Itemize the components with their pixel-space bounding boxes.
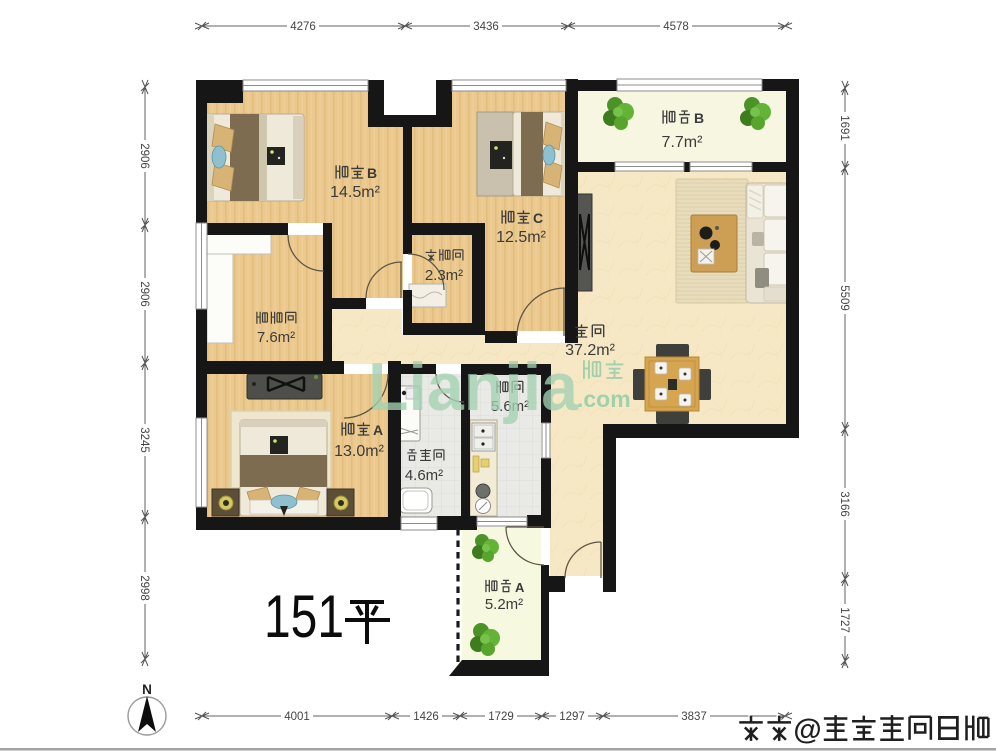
svg-text:3245: 3245 (138, 427, 150, 453)
svg-text:4.6m²: 4.6m² (405, 467, 443, 484)
svg-text:1426: 1426 (413, 711, 439, 723)
svg-text:Lianjia: Lianjia (368, 349, 579, 425)
svg-text:12.5m²: 12.5m² (496, 229, 546, 246)
svg-text:5.2m²: 5.2m² (485, 596, 523, 613)
svg-text:3166: 3166 (838, 491, 850, 517)
svg-text:1729: 1729 (488, 711, 514, 723)
svg-text:@: @ (793, 714, 821, 746)
svg-text:B: B (367, 165, 377, 181)
svg-text:2906: 2906 (138, 281, 150, 307)
svg-text:3436: 3436 (473, 21, 499, 33)
svg-text:1297: 1297 (559, 711, 585, 723)
svg-text:4001: 4001 (284, 711, 310, 723)
svg-text:1691: 1691 (838, 115, 850, 141)
svg-text:.com: .com (577, 386, 631, 412)
svg-text:B: B (694, 110, 704, 126)
svg-text:C: C (533, 210, 543, 226)
svg-text:5509: 5509 (838, 285, 850, 311)
svg-text:151: 151 (264, 583, 344, 650)
svg-text:4276: 4276 (290, 21, 316, 33)
svg-text:1727: 1727 (838, 607, 850, 633)
svg-text:2.3m²: 2.3m² (425, 267, 463, 284)
svg-text:4578: 4578 (663, 21, 689, 33)
svg-text:13.0m²: 13.0m² (334, 443, 384, 460)
svg-text:N: N (142, 682, 152, 697)
svg-text:7.7m²: 7.7m² (662, 134, 704, 151)
svg-text:A: A (515, 580, 525, 595)
svg-text:2906: 2906 (138, 143, 150, 169)
svg-text:2998: 2998 (138, 575, 150, 601)
svg-text:14.5m²: 14.5m² (330, 184, 380, 201)
svg-text:7.6m²: 7.6m² (257, 329, 295, 346)
svg-text:3837: 3837 (681, 711, 707, 723)
